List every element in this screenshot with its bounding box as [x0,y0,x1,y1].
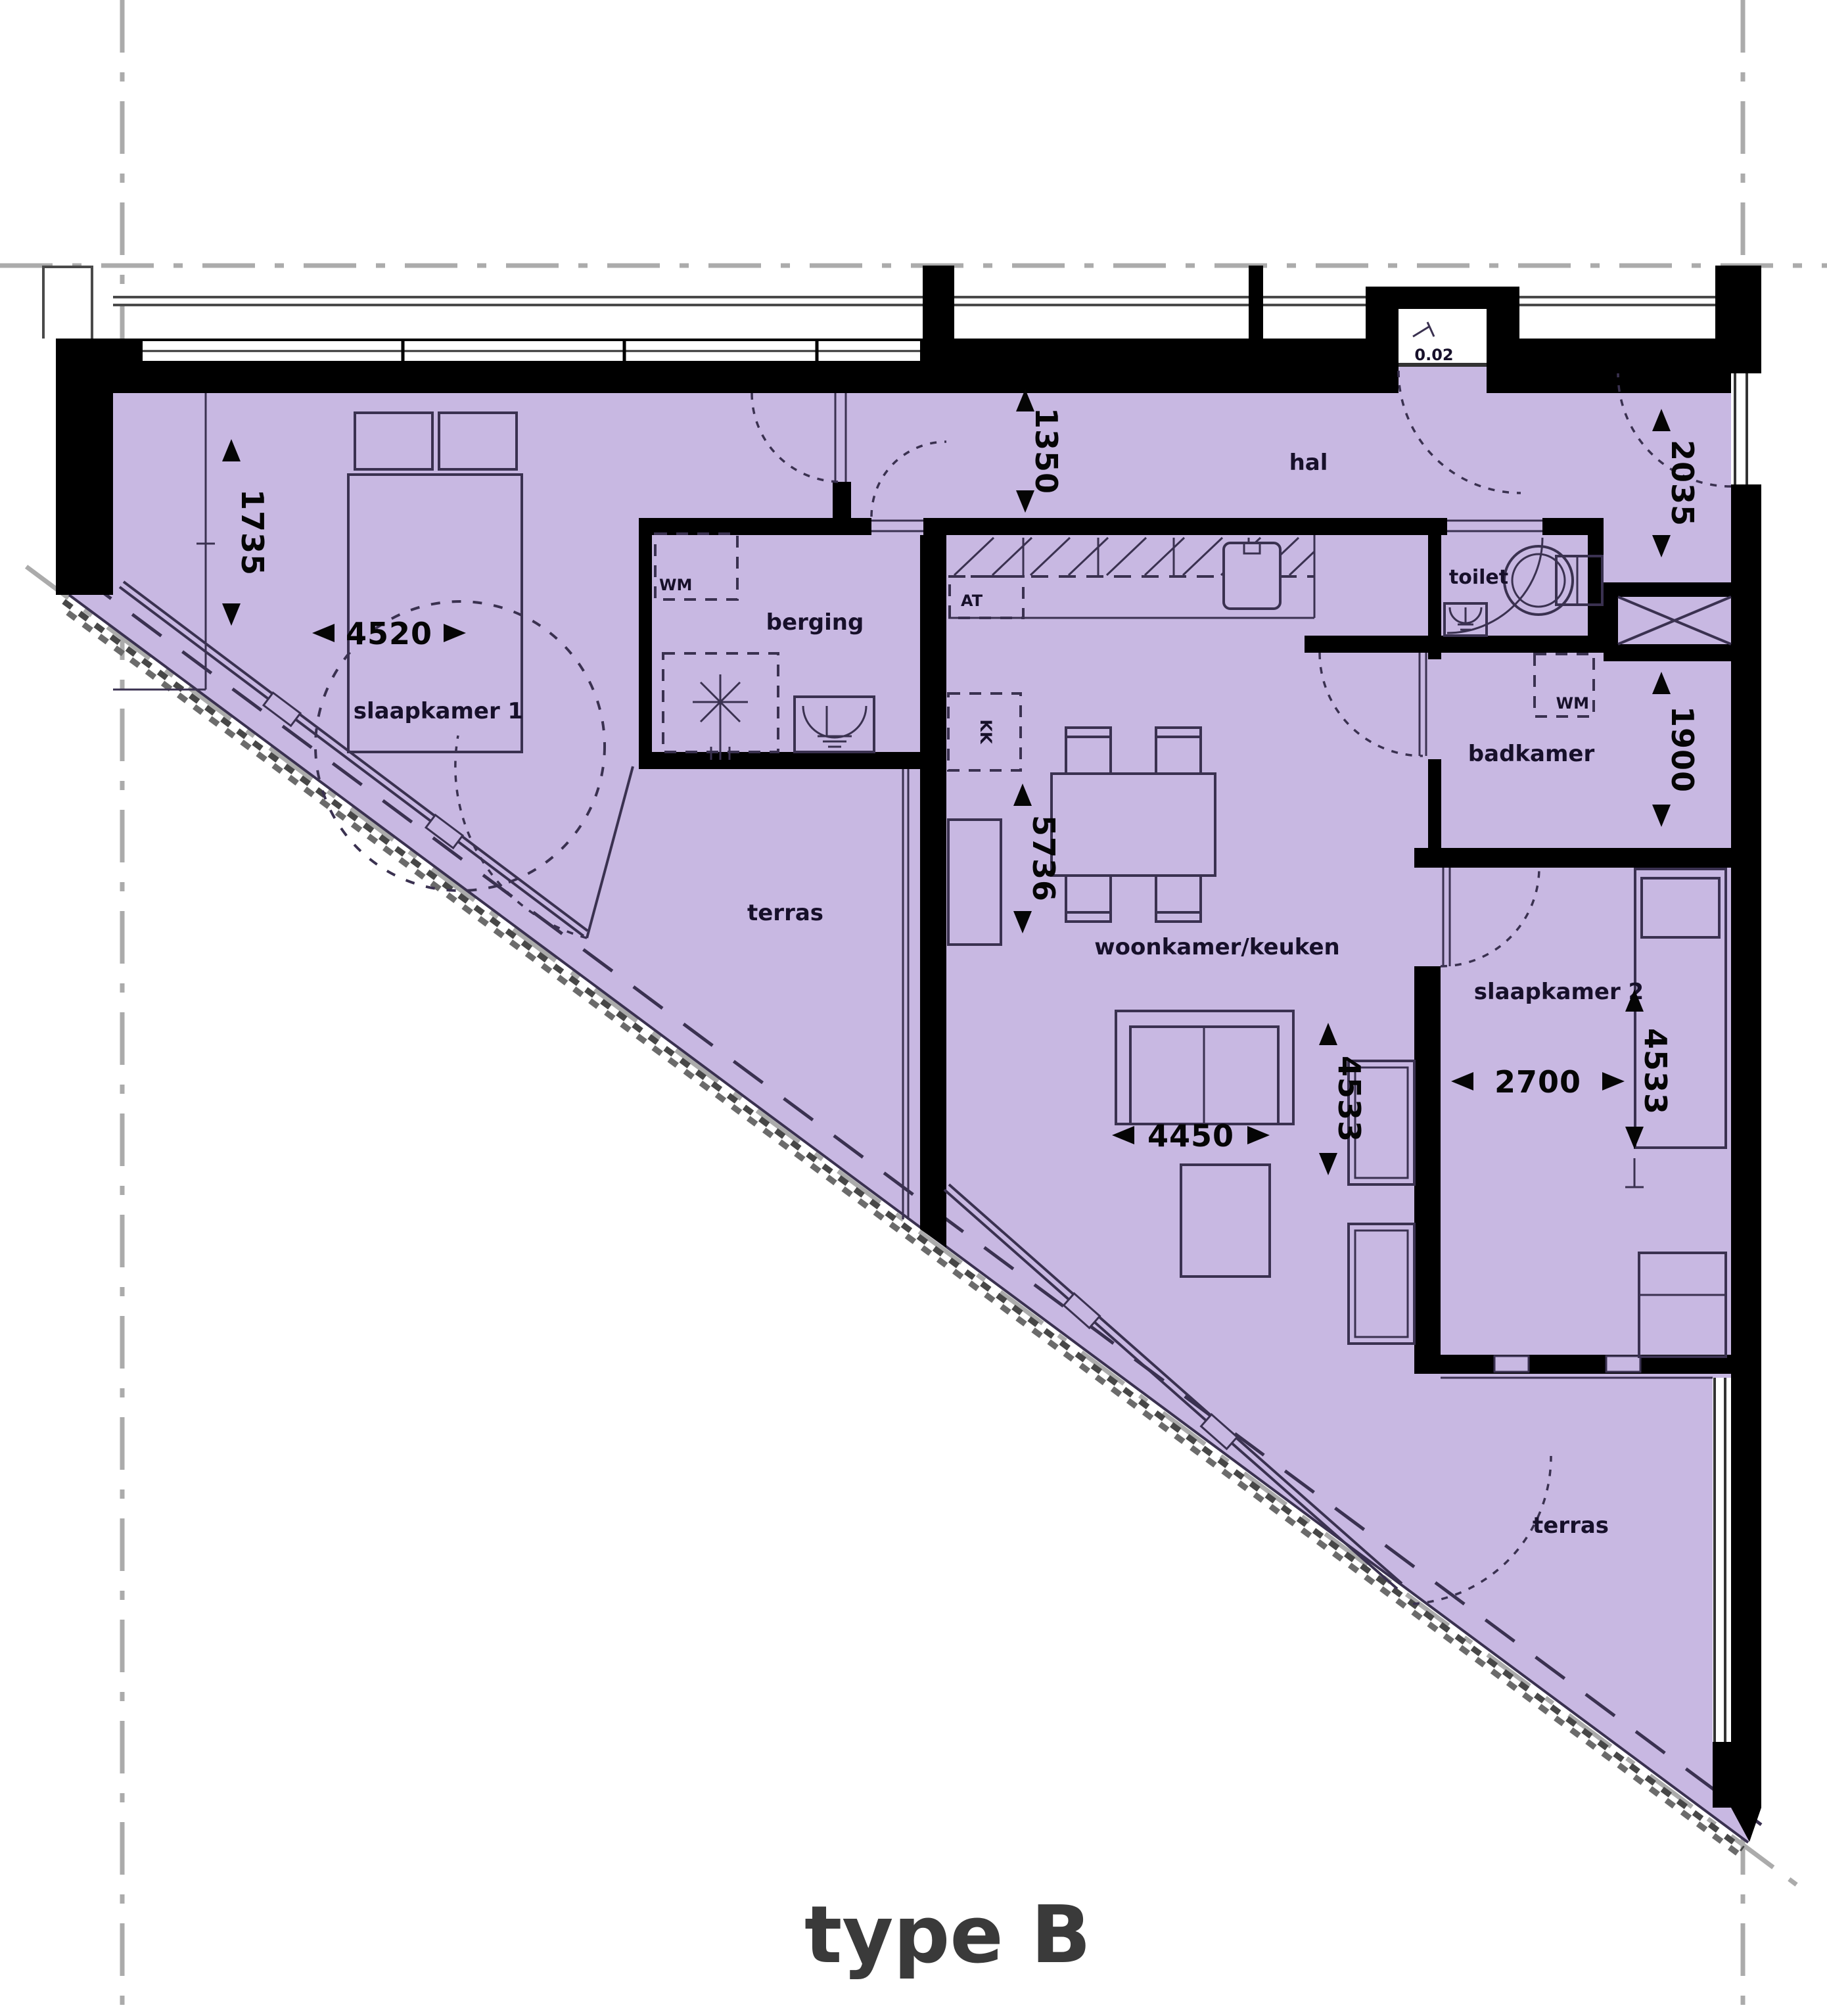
neighbour-window-left [43,266,92,339]
badkamer-west-wall-top [1428,653,1441,659]
shower-symbol [693,674,748,730]
hal-south-wall-b [923,518,1447,535]
label-slaapkamer2: slaapkamer 2 [1474,979,1644,1005]
slaapkamer1-hal-wall-stub [833,482,851,519]
plan-title: type B [804,1890,1091,1981]
label-hal: hal [1289,450,1328,476]
neighbour-wall-stub-3 [1715,266,1761,339]
floorplan-drawing: 0.02 [0,0,1827,2016]
vestibule-right-wall [1487,287,1519,393]
right-wall-bottom-block [1713,1742,1761,1808]
vestibule-left-wall [1366,287,1399,393]
shaft-south-wall [1604,644,1731,661]
neighbour-facade-line-1 [113,297,923,305]
dim-text-4450: 4450 [1147,1118,1234,1154]
dim-text-4533a: 4533 [1331,1056,1367,1142]
washer-label-badkamer: WM [1556,694,1589,713]
neighbour-wall-stub-2 [1249,266,1263,339]
label-berging: berging [766,609,864,636]
dim-text-1350: 1350 [1029,408,1064,494]
badkamer-west-wall-bottom [1428,759,1441,848]
label-terras-zuid: terras [1533,1512,1609,1539]
left-wall [56,339,113,595]
dim-text-2700: 2700 [1494,1064,1581,1100]
fridge-label: KK [977,719,995,745]
neighbour-wall-stub-1 [923,266,954,339]
top-wall-right-segment [1519,339,1761,393]
counter-appliance-label: AT [961,592,983,610]
label-toilet: toilet [1449,566,1508,589]
terras-woonkamer-wall [920,535,946,1229]
berging-south-wall [639,752,946,769]
shaft-west-stub [1604,582,1618,661]
shaft-north-wall [1604,582,1731,597]
window-break-s2-b [1606,1356,1640,1372]
dim-text-4533b: 4533 [1638,1028,1673,1115]
label-slaapkamer1: slaapkamer 1 [354,698,523,724]
dim-text-2035: 2035 [1665,440,1700,527]
washer-label-berging: WM [659,576,692,594]
right-wall [1731,339,1761,1808]
dim-text-1900: 1900 [1665,706,1700,793]
floorplan-page: 0.02 [0,0,1827,2016]
dim-text-1735: 1735 [235,489,270,576]
slaapkamer2-west-wall [1414,966,1441,1355]
hal-south-wall-c [1542,518,1604,535]
toilet-south-wall [1305,636,1604,653]
dim-text-4520: 4520 [346,616,432,651]
dim-text-5736: 5736 [1026,815,1061,902]
label-woonkamer: woonkamer/keuken [1094,934,1340,960]
label-terras-west: terras [747,900,823,926]
neighbour-facade-line-2 [954,297,1249,305]
entrance-number-label: 0.02 [1414,346,1453,364]
hal-south-wall-a [639,518,871,535]
window-break-s2-a [1494,1356,1529,1372]
toilet-west-wall [1428,535,1441,636]
neighbour-facade-line-4 [1519,297,1715,305]
badkamer-south-wall [1414,848,1731,868]
neighbour-facade-line-3 [1263,297,1366,305]
label-badkamer: badkamer [1468,741,1595,767]
berging-west-wall [639,535,652,752]
